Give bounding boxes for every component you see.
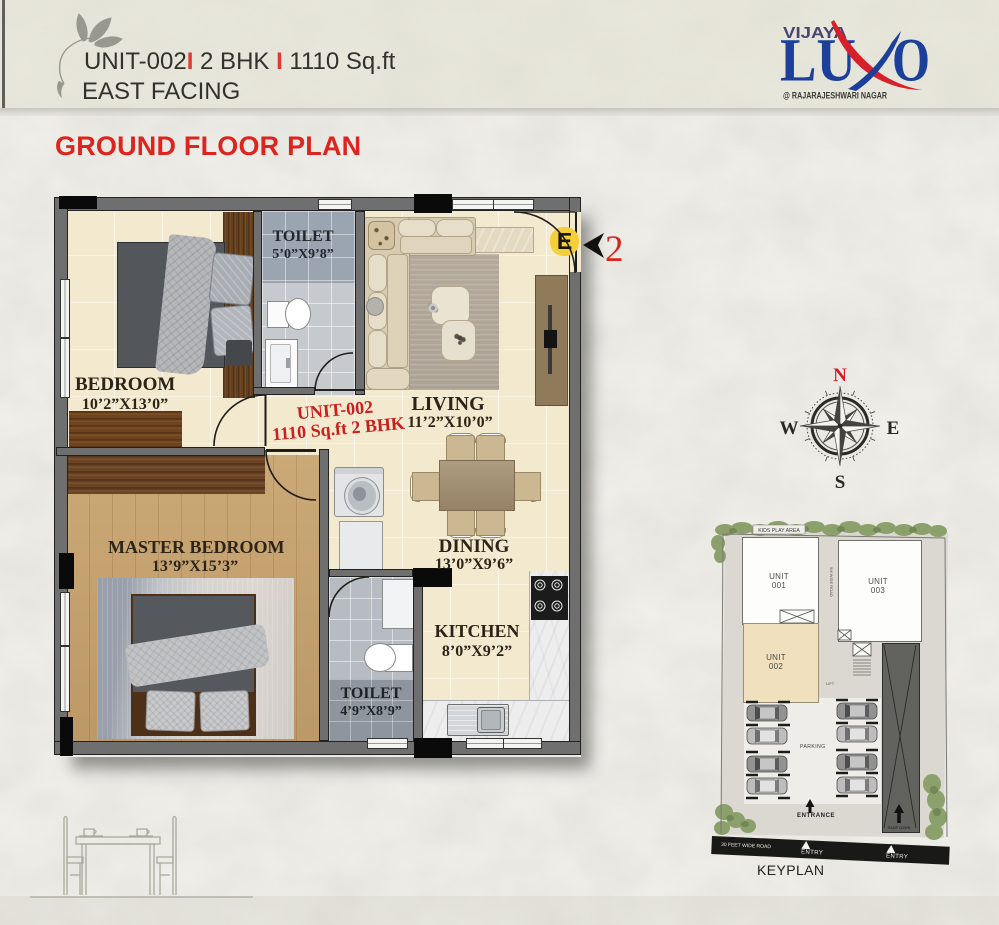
svg-text:@ RAJARAJESHWARI NAGAR: @ RAJARAJESHWARI NAGAR xyxy=(783,91,887,101)
